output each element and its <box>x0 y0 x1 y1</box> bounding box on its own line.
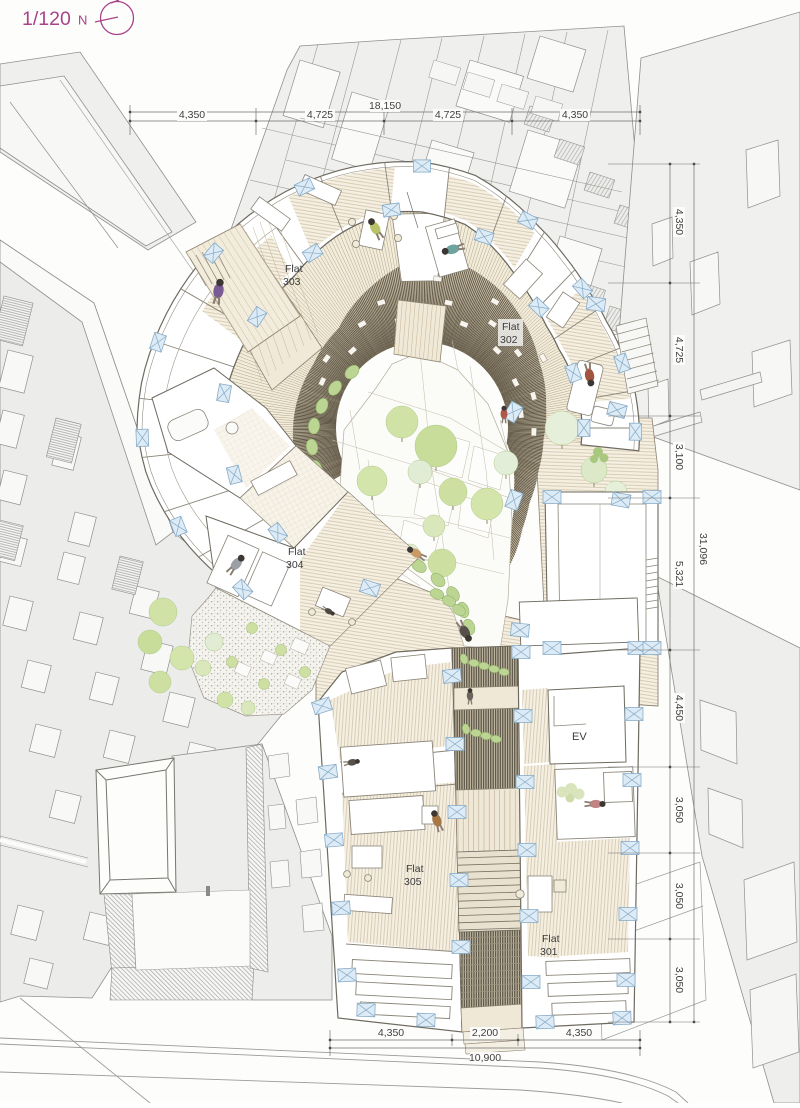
svg-text:Flat: Flat <box>288 546 306 558</box>
svg-text:303: 303 <box>283 276 301 288</box>
svg-text:302: 302 <box>500 334 518 346</box>
svg-text:18,150: 18,150 <box>369 100 401 112</box>
svg-text:10,900: 10,900 <box>469 1052 501 1064</box>
svg-text:4,725: 4,725 <box>435 109 461 121</box>
svg-text:Flat: Flat <box>502 321 520 333</box>
svg-text:4,350: 4,350 <box>566 1027 592 1039</box>
svg-text:4,350: 4,350 <box>673 209 685 235</box>
svg-text:3,050: 3,050 <box>673 883 685 909</box>
svg-text:Flat: Flat <box>542 933 560 945</box>
svg-text:304: 304 <box>286 559 304 571</box>
svg-text:4,350: 4,350 <box>378 1027 404 1039</box>
svg-text:4,350: 4,350 <box>562 109 588 121</box>
svg-text:2,200: 2,200 <box>472 1027 498 1039</box>
svg-text:301: 301 <box>540 946 558 958</box>
svg-text:305: 305 <box>404 876 422 888</box>
svg-text:3,100: 3,100 <box>673 444 685 470</box>
svg-text:5,321: 5,321 <box>673 561 685 587</box>
svg-text:4,725: 4,725 <box>307 109 333 121</box>
svg-text:1/120: 1/120 <box>22 8 71 30</box>
svg-text:N: N <box>78 13 87 28</box>
svg-text:4,725: 4,725 <box>673 337 685 363</box>
svg-text:Flat: Flat <box>285 263 303 275</box>
svg-text:3,050: 3,050 <box>673 797 685 823</box>
svg-text:4,450: 4,450 <box>673 695 685 721</box>
svg-text:Flat: Flat <box>406 863 424 875</box>
svg-text:31,096: 31,096 <box>697 533 709 565</box>
svg-text:EV: EV <box>572 731 587 743</box>
svg-text:4,350: 4,350 <box>179 109 205 121</box>
svg-text:3,050: 3,050 <box>673 967 685 993</box>
